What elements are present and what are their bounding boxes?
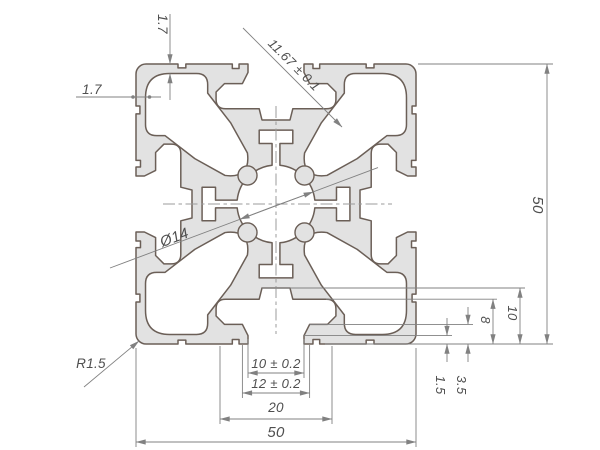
dim-overall-height: 50 [529, 196, 546, 214]
corner-cavity-top-right [304, 74, 406, 176]
corner-cavity-bottom-left [146, 232, 248, 334]
drawing-canvas: 1.7 1.7 11.67 ± 0.1 Ø14 50 10 8 1.5 3.5 … [0, 0, 600, 450]
dim-top-wall: 1.7 [155, 14, 170, 34]
screw-boss-top-right [295, 166, 314, 185]
dim-slot-opening: 10 ± 0.2 [251, 356, 301, 371]
corner-cavity-top-left [146, 74, 248, 176]
dim-slot-cavity-width: 20 [267, 400, 284, 415]
dim-lip-total-depth: 3.5 [454, 376, 469, 395]
corner-cavity-bottom-right [304, 232, 406, 334]
screw-boss-top-left [238, 166, 257, 185]
technical-drawing: 1.7 1.7 11.67 ± 0.1 Ø14 50 10 8 1.5 3.5 … [0, 0, 600, 450]
screw-boss-bottom-left [238, 223, 257, 242]
screw-boss-bottom-right [295, 223, 314, 242]
dim-slot-cavity-depth: 8 [478, 316, 493, 324]
dim-corner-radius: R1.5 [76, 356, 106, 371]
dim-left-wall: 1.7 [82, 82, 102, 97]
dim-slot-recess-depth: 10 [505, 305, 520, 321]
dim-slot-opening-outer: 12 ± 0.2 [251, 376, 301, 391]
dim-overall-width: 50 [267, 424, 285, 441]
dim-lip-thickness: 1.5 [433, 376, 448, 395]
dim-diagonal-boss: 11.67 ± 0.1 [265, 36, 323, 94]
